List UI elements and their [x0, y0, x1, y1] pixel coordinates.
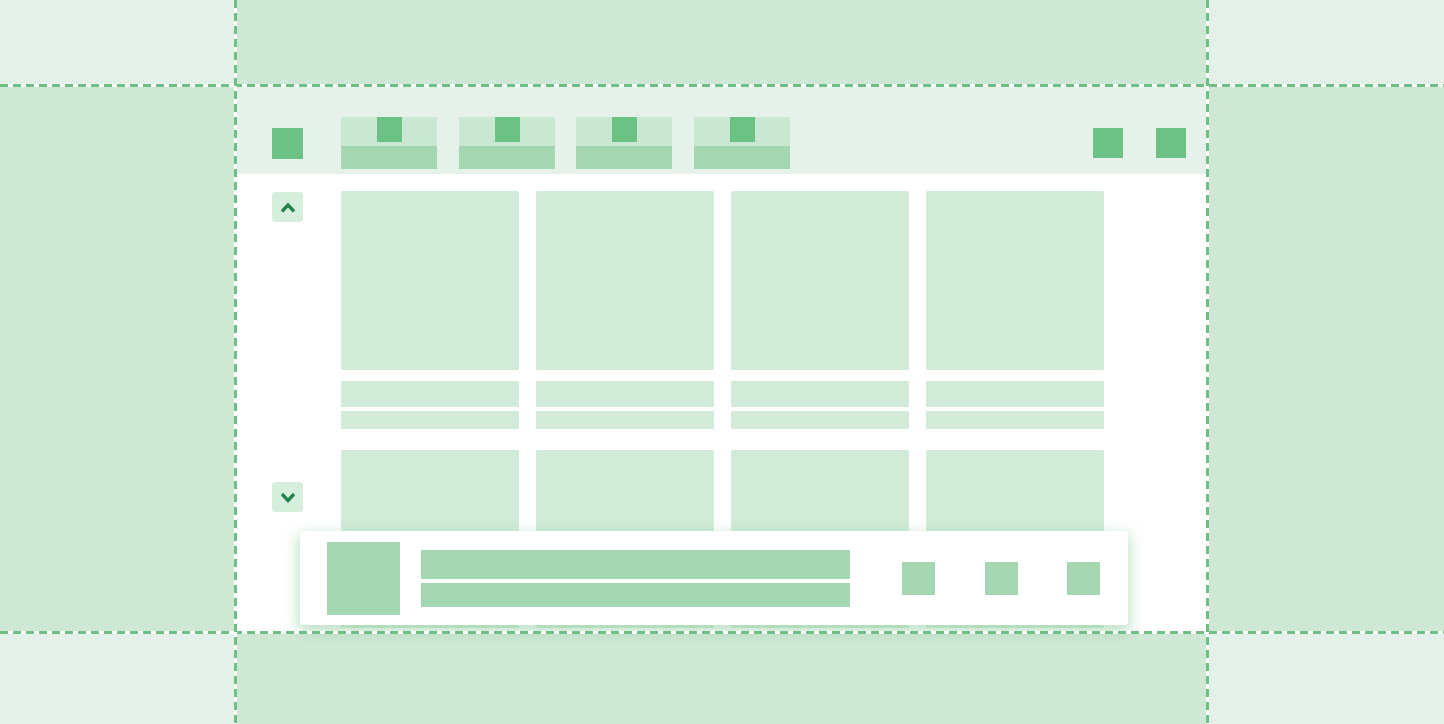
notification-toast	[300, 531, 1128, 625]
tab-top-placeholder	[694, 117, 790, 146]
tab-top-placeholder	[576, 117, 672, 146]
text-line-placeholder	[341, 411, 519, 429]
content-card[interactable]	[926, 191, 1104, 370]
margin-band-top	[235, 0, 1208, 86]
text-line-placeholder	[536, 411, 714, 429]
content-card[interactable]	[341, 191, 519, 370]
margin-band-bottom	[235, 633, 1208, 724]
text-line-placeholder	[536, 381, 714, 407]
toast-thumbnail-square	[327, 542, 400, 615]
scroll-up-button[interactable]	[272, 192, 303, 222]
tab-favicon-square-icon	[495, 117, 520, 142]
tab-top-placeholder	[341, 117, 437, 146]
browser-tab-3[interactable]	[576, 117, 672, 169]
text-line-placeholder	[731, 381, 909, 407]
toast-action-button-2[interactable]	[985, 562, 1018, 595]
tab-top-placeholder	[459, 117, 555, 146]
tab-favicon-square-icon	[377, 117, 402, 142]
toolbar-actions	[1093, 128, 1186, 158]
browser-tab-1[interactable]	[341, 117, 437, 169]
toolbar-action-square-2[interactable]	[1156, 128, 1186, 158]
margin-band-left	[0, 86, 235, 633]
chevron-up-icon	[278, 200, 298, 215]
text-line-placeholder	[926, 381, 1104, 407]
layout-guide-horizontal-top	[0, 84, 1444, 87]
browser-window	[235, 86, 1208, 633]
browser-tab-4[interactable]	[694, 117, 790, 169]
browser-tab-2[interactable]	[459, 117, 555, 169]
tab-title-placeholder	[576, 146, 672, 169]
toast-actions	[902, 562, 1100, 595]
text-line-placeholder	[731, 411, 909, 429]
toast-text-line-placeholder	[421, 550, 850, 579]
tab-title-placeholder	[459, 146, 555, 169]
toast-text-line-placeholder	[421, 583, 850, 607]
tab-favicon-square-icon	[612, 117, 637, 142]
toast-action-button-3[interactable]	[1067, 562, 1100, 595]
toast-action-button-1[interactable]	[902, 562, 935, 595]
tab-title-placeholder	[694, 146, 790, 169]
text-line-placeholder	[341, 381, 519, 407]
layout-guide-vertical-right	[1206, 0, 1209, 724]
layout-guide-horizontal-bottom	[0, 631, 1444, 634]
browser-toolbar	[235, 86, 1208, 174]
tab-strip	[341, 117, 790, 169]
margin-band-right	[1208, 86, 1444, 633]
chevron-down-icon	[278, 490, 298, 505]
tab-title-placeholder	[341, 146, 437, 169]
text-line-placeholder	[926, 411, 1104, 429]
tab-favicon-square-icon	[730, 117, 755, 142]
toolbar-action-square-1[interactable]	[1093, 128, 1123, 158]
layout-guide-vertical-left	[234, 0, 237, 724]
scroll-down-button[interactable]	[272, 482, 303, 512]
content-card[interactable]	[731, 191, 909, 370]
design-canvas	[0, 0, 1444, 724]
content-card[interactable]	[536, 191, 714, 370]
toolbar-menu-square-button[interactable]	[272, 128, 303, 159]
